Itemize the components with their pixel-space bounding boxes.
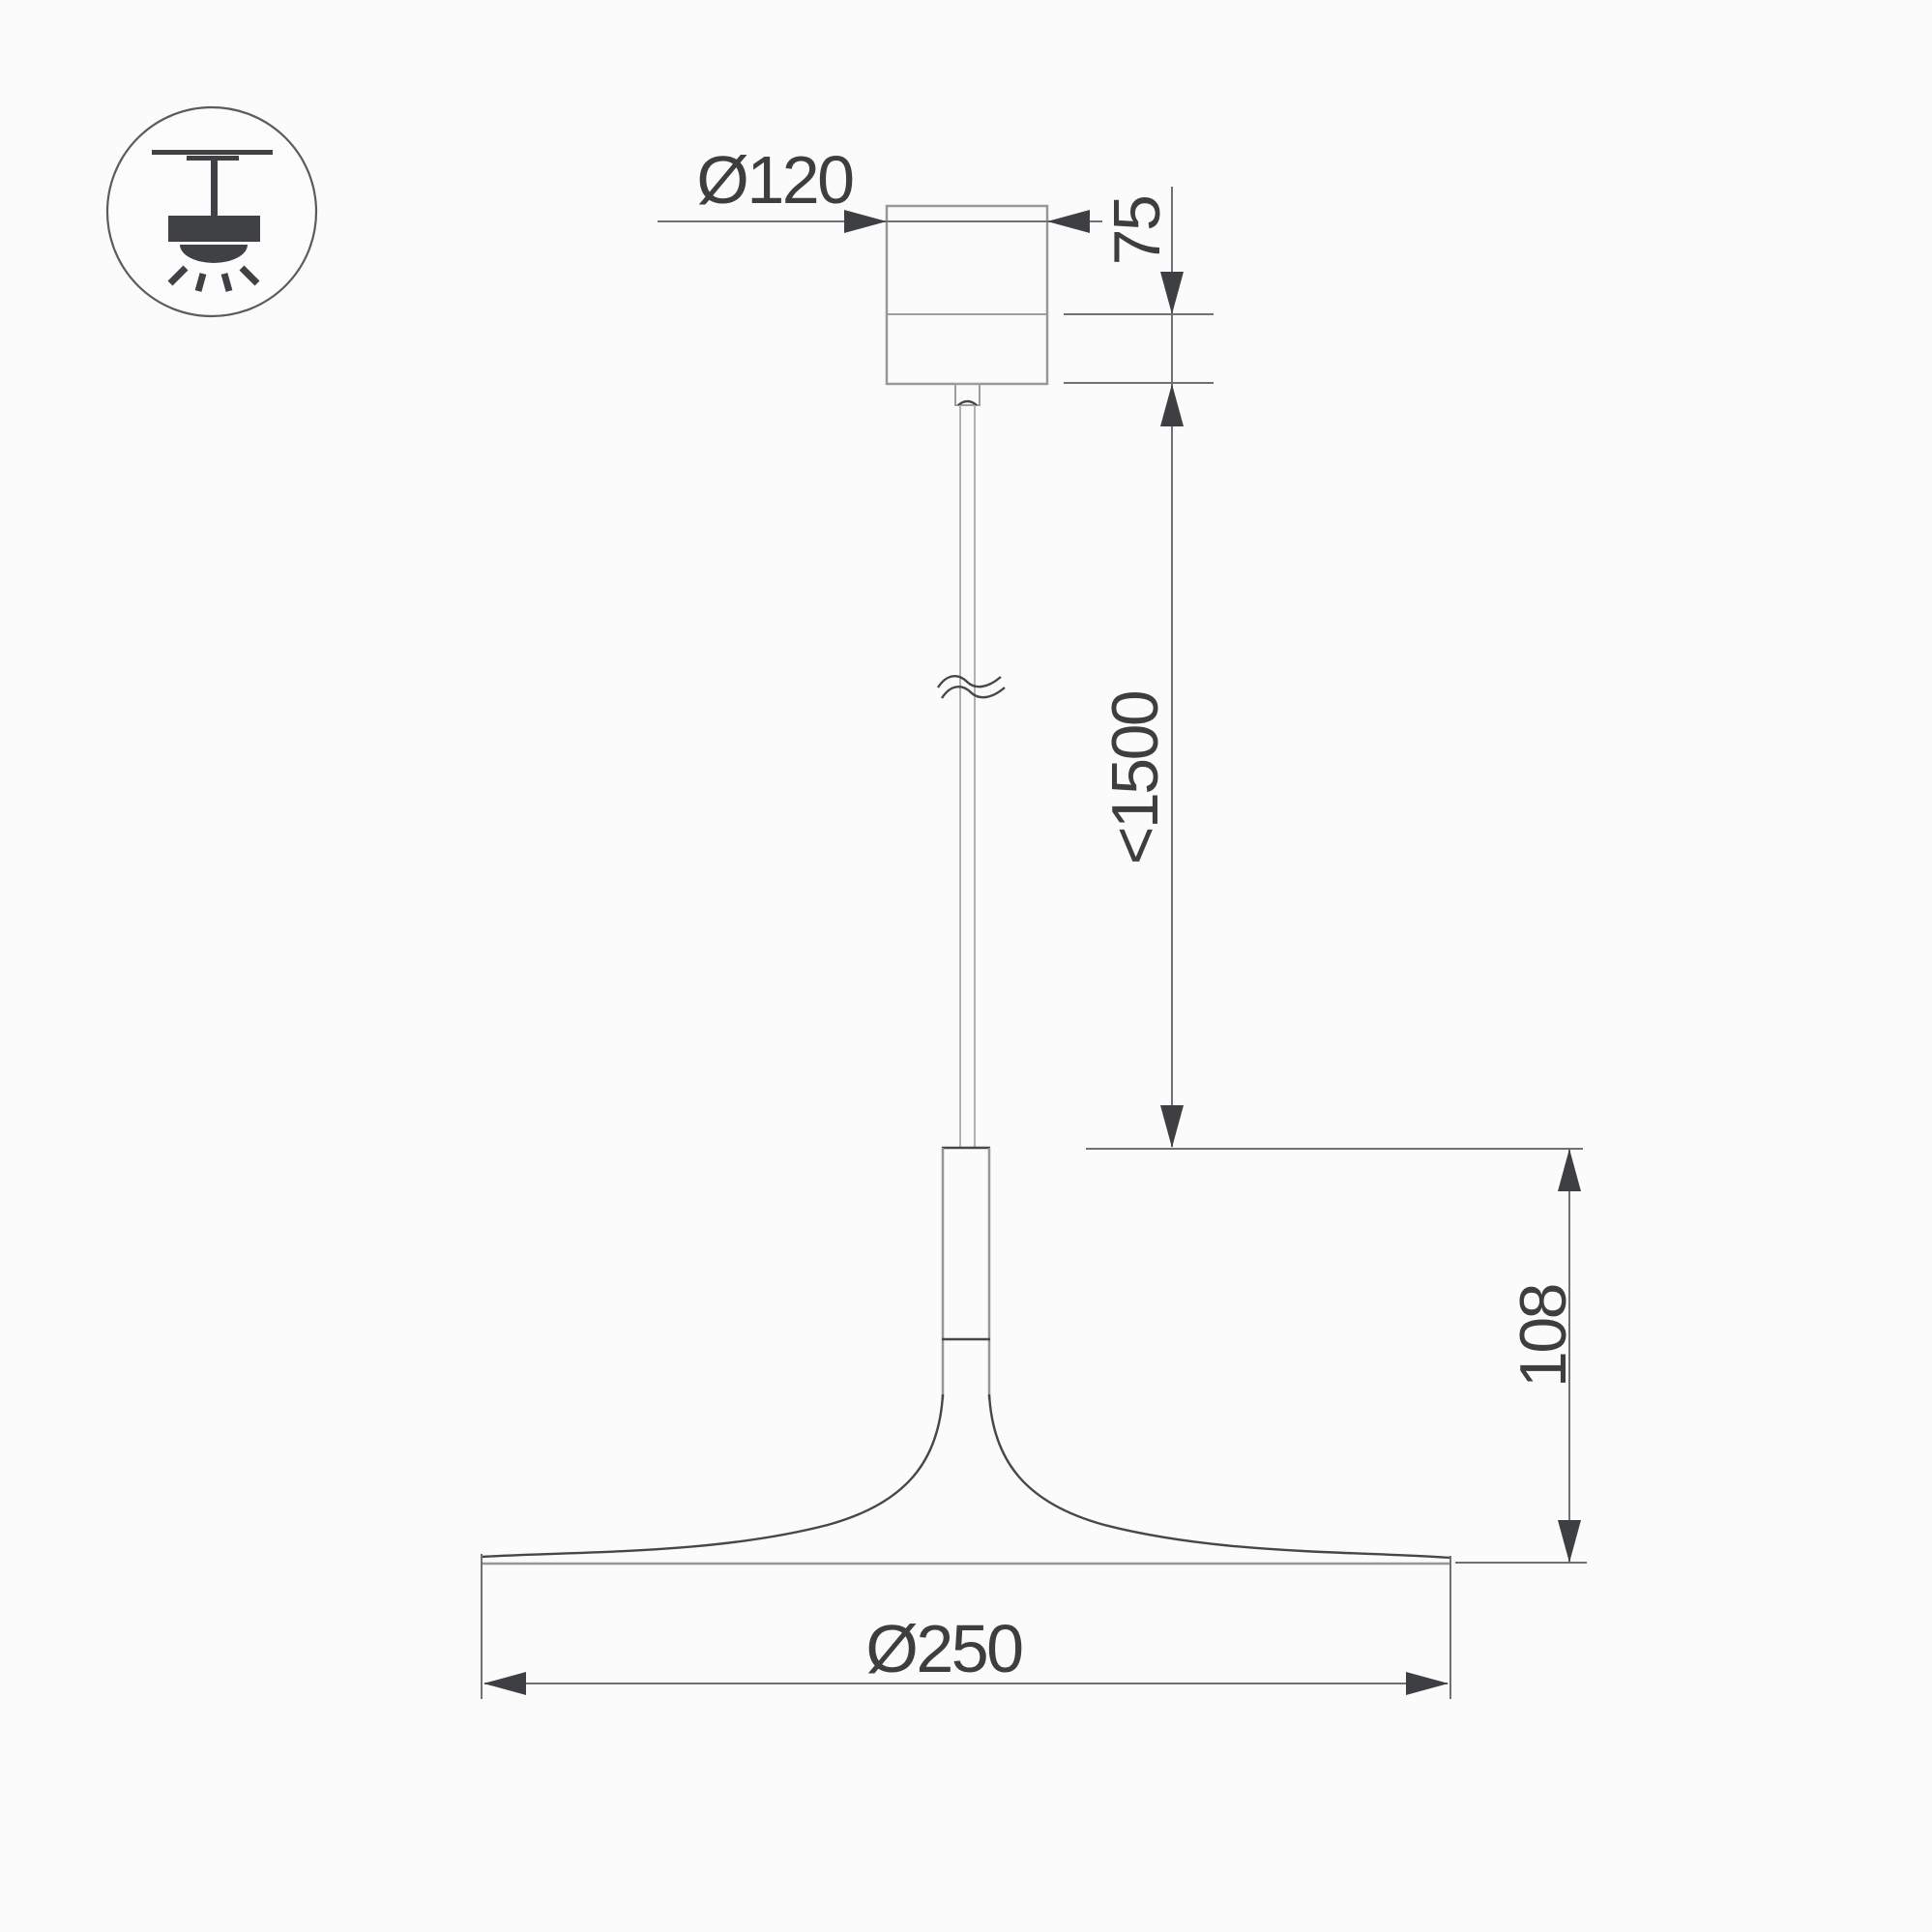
arrow-left-icon [1047, 210, 1090, 233]
arrow-left-icon [483, 1672, 526, 1695]
arrow-up-icon [1558, 1149, 1581, 1191]
arrow-down-icon [1160, 272, 1184, 314]
dimension-canopy-height: 75 [1064, 187, 1214, 1147]
suspension-cable [938, 405, 1005, 1147]
dimension-shade-height: 108 [1455, 1149, 1587, 1563]
arrow-down-icon [1160, 1105, 1184, 1148]
shade-height-value: 108 [1507, 1285, 1580, 1388]
shade-left-profile [482, 1394, 943, 1557]
lamp-head [482, 1148, 1450, 1564]
ceiling-canopy [887, 206, 1047, 405]
dimension-canopy-diameter: Ø120 [658, 142, 1102, 233]
shade-diameter-value: Ø250 [865, 1611, 1022, 1686]
icon-lamp-body [168, 216, 260, 242]
suspension-length-value: <1500 [1098, 691, 1172, 864]
arrow-up-icon [1160, 384, 1184, 426]
canopy-body [887, 206, 1047, 384]
arrow-right-icon [1406, 1672, 1449, 1695]
canopy-height-value: 75 [1100, 197, 1174, 266]
pendant-lamp-icon [107, 107, 316, 316]
shade-right-profile [989, 1394, 1450, 1558]
dimension-suspension-length: <1500 [1086, 691, 1583, 1149]
dimension-shade-diameter: Ø250 [482, 1554, 1450, 1699]
arrow-down-icon [1558, 1520, 1581, 1563]
icon-stem [211, 159, 218, 217]
icon-ceiling-line [152, 150, 273, 155]
cable-break-symbol [938, 676, 1005, 698]
dimension-drawing-canvas: Ø120 75 <1500 108 Ø250 [0, 0, 1932, 1932]
canopy-diameter-value: Ø120 [696, 142, 853, 218]
